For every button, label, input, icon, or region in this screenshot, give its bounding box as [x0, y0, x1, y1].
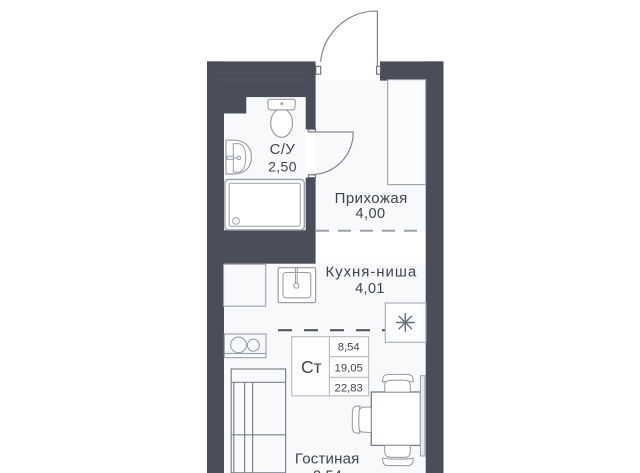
svg-text:8,54: 8,54 [338, 342, 360, 354]
svg-text:19,05: 19,05 [335, 362, 363, 374]
svg-text:Гостиная: Гостиная [295, 451, 360, 468]
svg-text:4,01: 4,01 [355, 281, 385, 297]
svg-text:8,54: 8,54 [313, 469, 342, 473]
svg-text:С/У: С/У [270, 141, 296, 158]
svg-text:Кухня-ниша: Кухня-ниша [325, 263, 417, 280]
svg-text:Прихожая: Прихожая [335, 190, 408, 207]
svg-text:Ст: Ст [301, 357, 322, 377]
svg-text:2,50: 2,50 [268, 159, 297, 175]
svg-text:4,00: 4,00 [355, 206, 385, 222]
svg-text:22,83: 22,83 [335, 382, 363, 394]
